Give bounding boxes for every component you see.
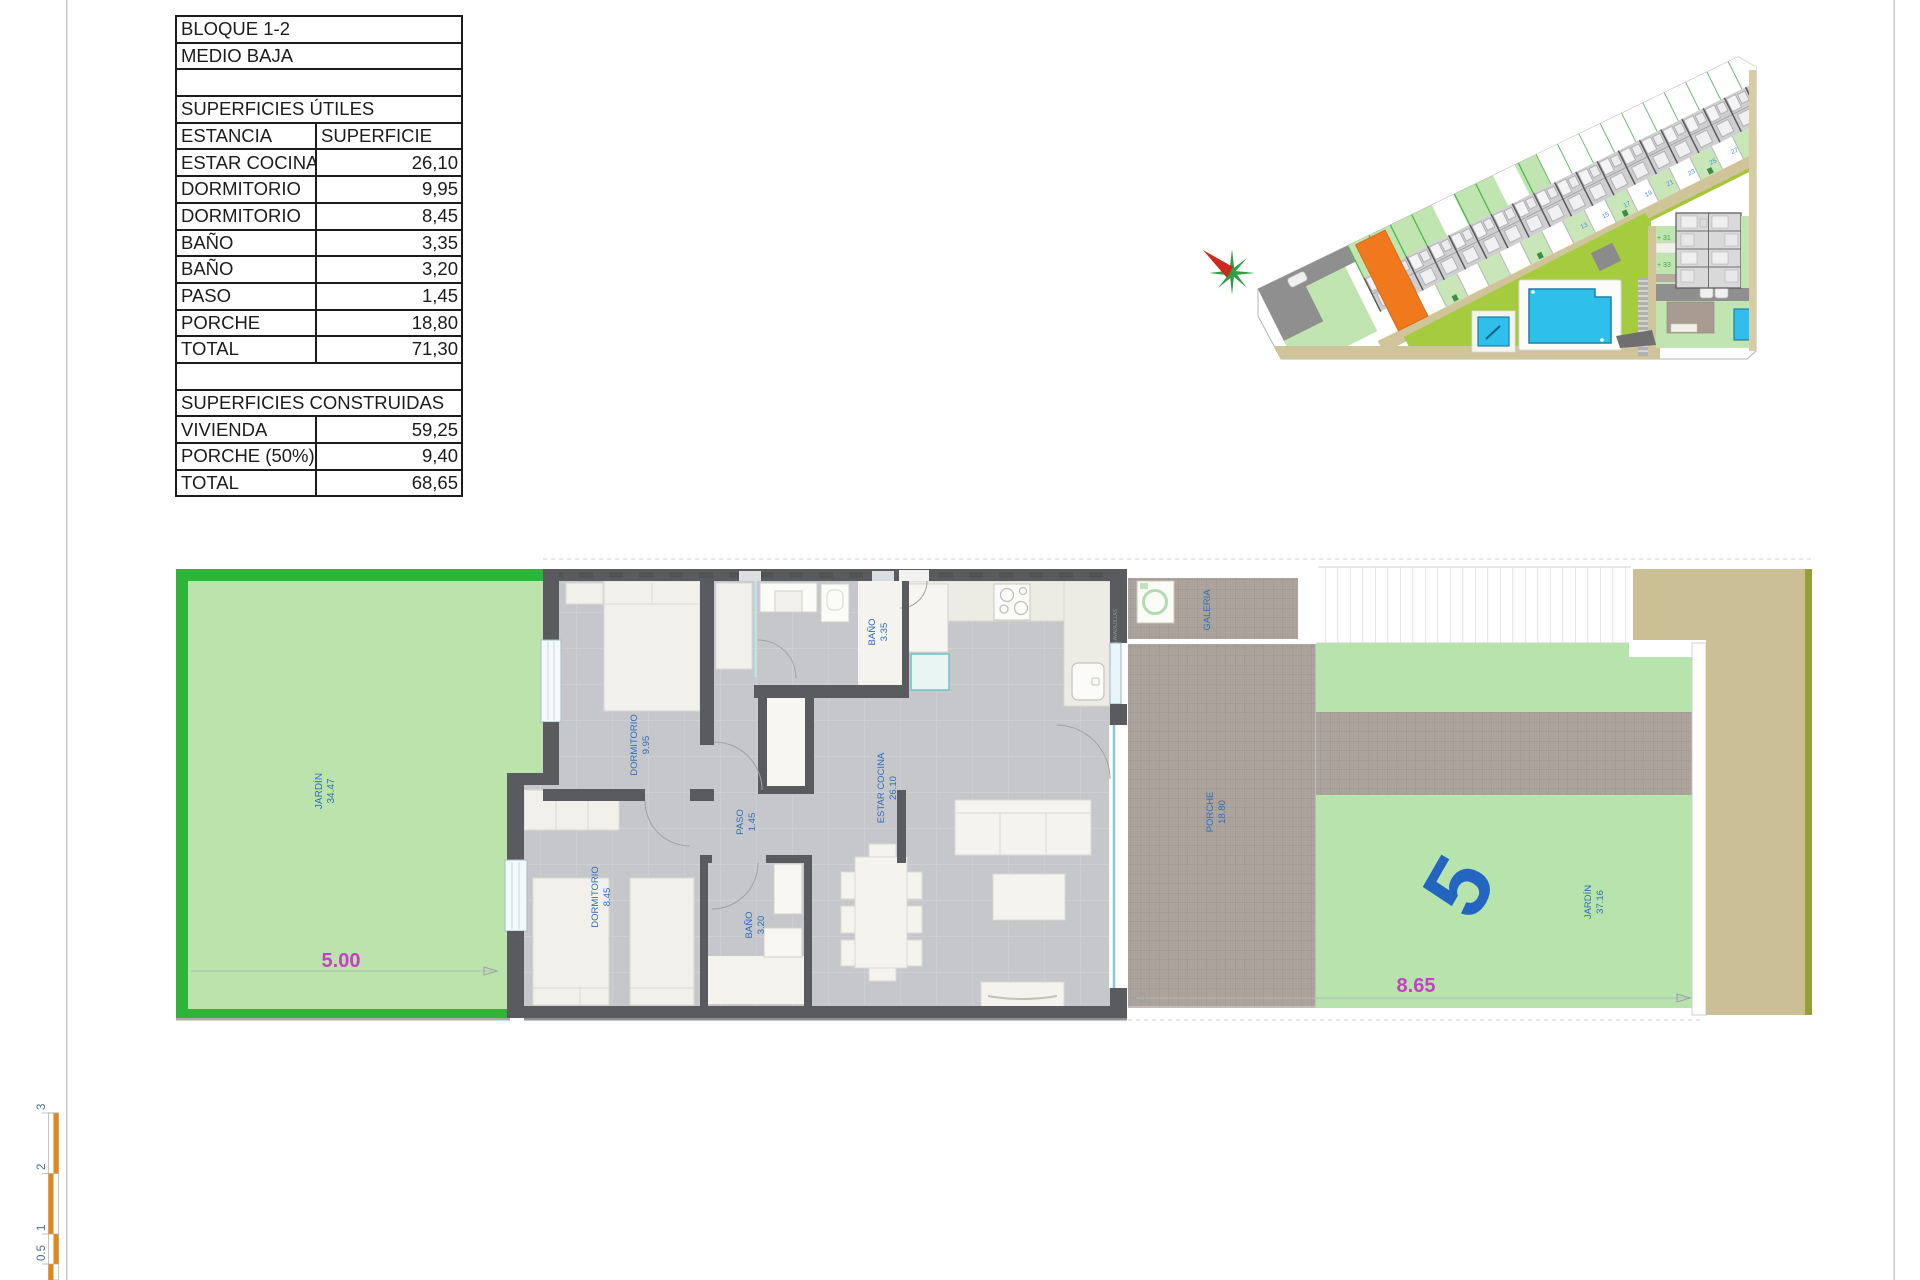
- svg-text:9.95: 9.95: [641, 736, 652, 755]
- svg-text:+ 33: + 33: [1657, 262, 1671, 269]
- svg-text:5.00: 5.00: [322, 950, 361, 972]
- svg-text:+ 31: + 31: [1657, 235, 1671, 242]
- svg-text:PORCHE: PORCHE: [1205, 792, 1216, 833]
- svg-text:1.45: 1.45: [747, 813, 758, 832]
- svg-text:3.20: 3.20: [756, 916, 767, 935]
- svg-text:0.5: 0.5: [36, 1245, 48, 1261]
- svg-text:37.16: 37.16: [1595, 890, 1606, 914]
- svg-text:GALERIA: GALERIA: [1202, 589, 1213, 631]
- svg-text:34.47: 34.47: [326, 778, 337, 803]
- svg-text:ESTAR COCINA: ESTAR COCINA: [876, 752, 887, 823]
- svg-text:3: 3: [36, 1104, 48, 1110]
- svg-text:DORMITORIO: DORMITORIO: [629, 714, 640, 776]
- svg-text:BAÑO: BAÑO: [744, 912, 755, 939]
- svg-text:PASO: PASO: [735, 809, 746, 835]
- svg-text:2: 2: [36, 1164, 48, 1170]
- svg-text:JARDÍN: JARDÍN: [1583, 885, 1594, 919]
- svg-text:DORMITORIO: DORMITORIO: [590, 866, 601, 928]
- svg-text:8.45: 8.45: [602, 888, 613, 907]
- svg-text:LAVAVAJILLAS: LAVAVAJILLAS: [1113, 608, 1119, 643]
- svg-text:3.35: 3.35: [879, 623, 890, 642]
- svg-text:18.80: 18.80: [1217, 800, 1228, 824]
- svg-text:8.65: 8.65: [1397, 975, 1436, 997]
- svg-text:BAÑO: BAÑO: [867, 619, 878, 646]
- svg-text:1: 1: [36, 1225, 48, 1231]
- svg-text:JARDÍN: JARDÍN: [312, 773, 325, 809]
- svg-text:26.10: 26.10: [888, 776, 899, 800]
